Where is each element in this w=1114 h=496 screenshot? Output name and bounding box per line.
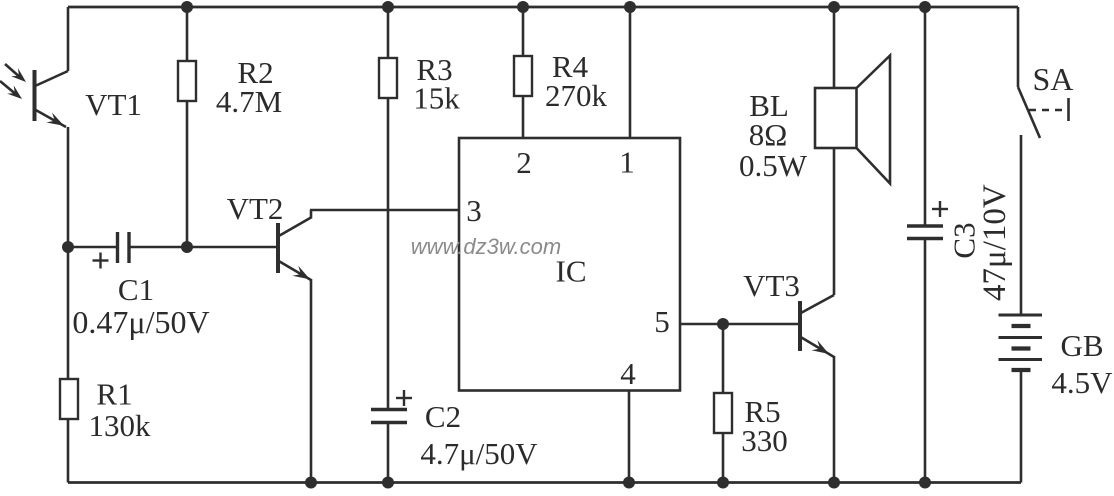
svg-text:130k: 130k [89,408,152,443]
svg-text:8Ω: 8Ω [749,117,788,152]
svg-text:SA: SA [1033,61,1074,97]
svg-text:4.7M: 4.7M [216,84,282,119]
svg-text:3: 3 [466,193,482,228]
svg-text:C1: C1 [118,272,154,307]
svg-text:4.5V: 4.5V [1051,365,1113,400]
svg-text:4.7μ/50V: 4.7μ/50V [420,436,538,471]
svg-text:R1: R1 [96,377,132,412]
svg-text:47μ/10V: 47μ/10V [977,184,1013,301]
svg-text:0.5W: 0.5W [739,148,808,183]
svg-text:GB: GB [1060,328,1103,363]
svg-text:5: 5 [654,304,670,339]
svg-text:1: 1 [619,145,635,180]
svg-text:www.dz3w.com: www.dz3w.com [411,234,561,259]
svg-text:2: 2 [516,145,532,180]
svg-text:VT2: VT2 [227,191,284,226]
svg-text:0.47μ/50V: 0.47μ/50V [72,304,209,340]
svg-text:VT1: VT1 [85,87,142,122]
svg-text:15k: 15k [413,81,460,116]
svg-text:C2: C2 [425,399,461,434]
svg-text:270k: 270k [545,78,608,113]
svg-text:VT3: VT3 [743,268,800,303]
svg-text:330: 330 [741,423,788,458]
svg-text:4: 4 [620,356,636,391]
